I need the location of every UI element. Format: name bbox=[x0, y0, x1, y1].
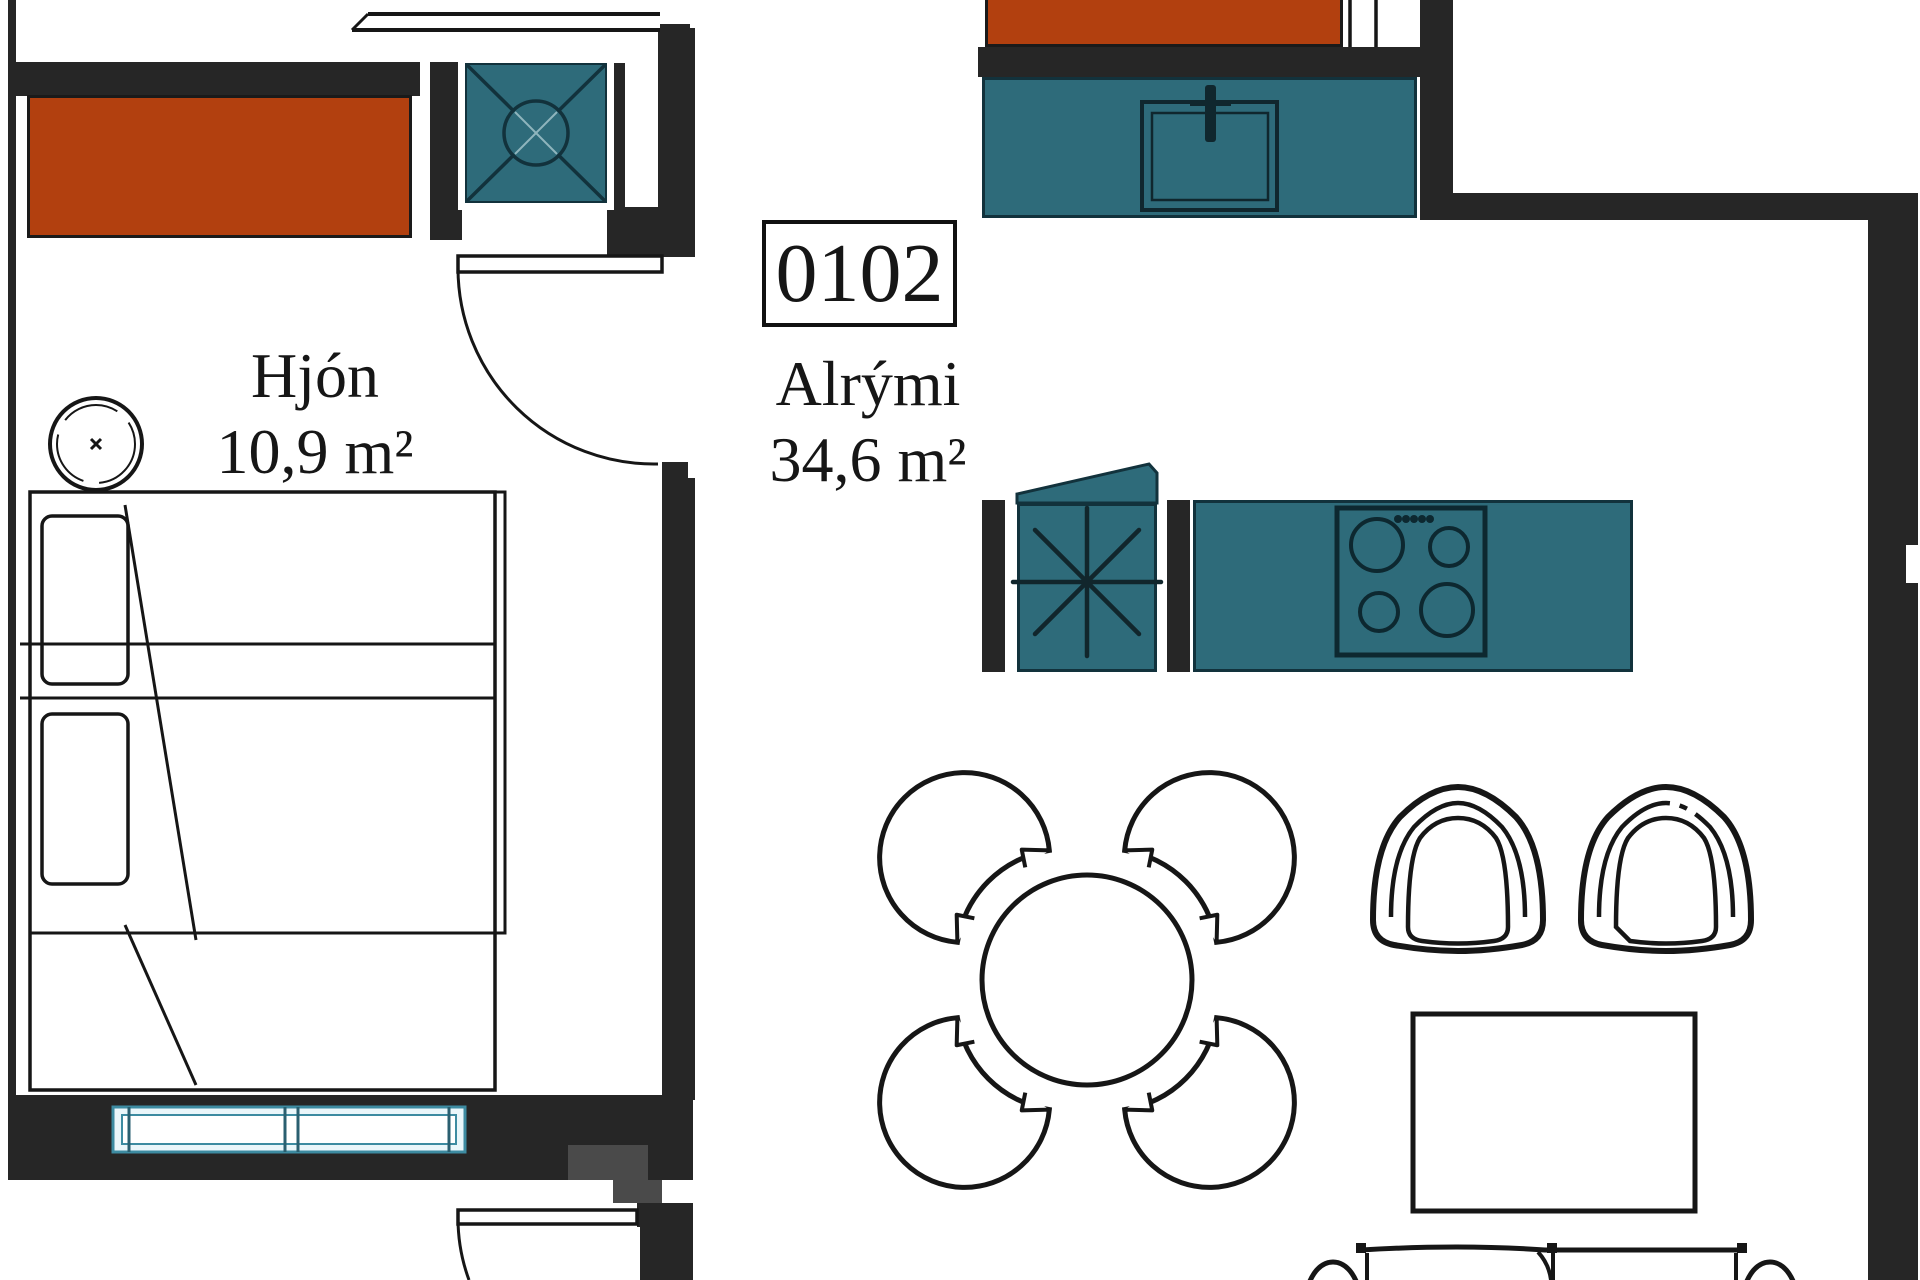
door-bedroom bbox=[458, 256, 662, 464]
fridge-icon bbox=[1013, 464, 1161, 656]
sink-icon bbox=[1142, 85, 1277, 210]
room-area-living: 34,6 m² bbox=[710, 428, 1026, 492]
dining-table bbox=[982, 875, 1192, 1085]
furniture-layer bbox=[0, 0, 1920, 1280]
coffee-table bbox=[1413, 1014, 1695, 1211]
armchair-right bbox=[1581, 787, 1751, 951]
bedside-lamp-top bbox=[50, 398, 142, 490]
window-top-right bbox=[1350, 0, 1376, 47]
apartment-number: 0102 bbox=[776, 225, 944, 322]
room-label-living: Alrými bbox=[718, 352, 1018, 416]
window-bedroom bbox=[113, 1107, 465, 1152]
double-bed bbox=[20, 492, 505, 1090]
stove-icon bbox=[1337, 508, 1485, 655]
door-lower bbox=[458, 1210, 637, 1280]
armchair-left bbox=[1373, 787, 1543, 951]
room-area-bedroom: 10,9 m² bbox=[155, 420, 475, 484]
room-label-bedroom: Hjón bbox=[190, 344, 440, 408]
floorplan-canvas: 0102 Hjón 10,9 m² Alrými 34,6 m² bbox=[0, 0, 1920, 1280]
shaft-fan-icon bbox=[467, 65, 605, 201]
entry-door bbox=[352, 14, 660, 30]
apartment-number-box: 0102 bbox=[762, 220, 957, 327]
stove-knobs bbox=[1394, 515, 1434, 523]
sofa bbox=[1306, 1243, 1797, 1280]
